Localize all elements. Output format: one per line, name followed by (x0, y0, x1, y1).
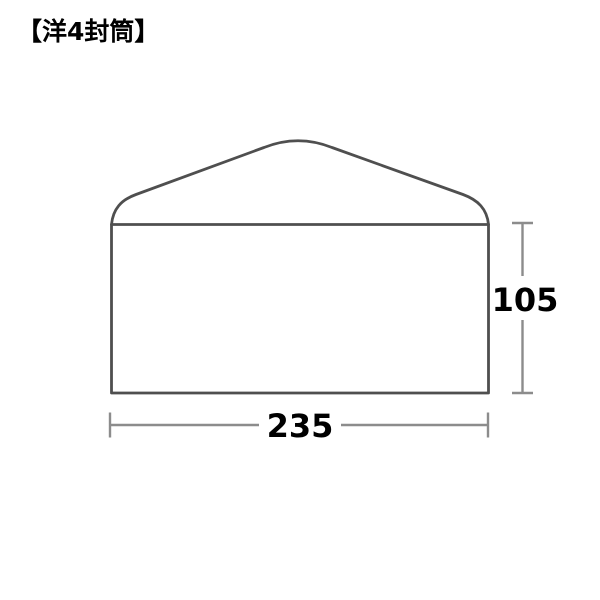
envelope-body (112, 225, 489, 394)
envelope-dimension-diagram: 105 235 (0, 0, 600, 600)
page: { "title": "【洋4封筒】", "diagram": { "label… (0, 0, 600, 600)
width-dimension-label: 235 (267, 407, 334, 445)
height-dimension-label: 105 (492, 281, 559, 319)
envelope-flap (112, 141, 489, 225)
envelope-outline (112, 141, 489, 393)
